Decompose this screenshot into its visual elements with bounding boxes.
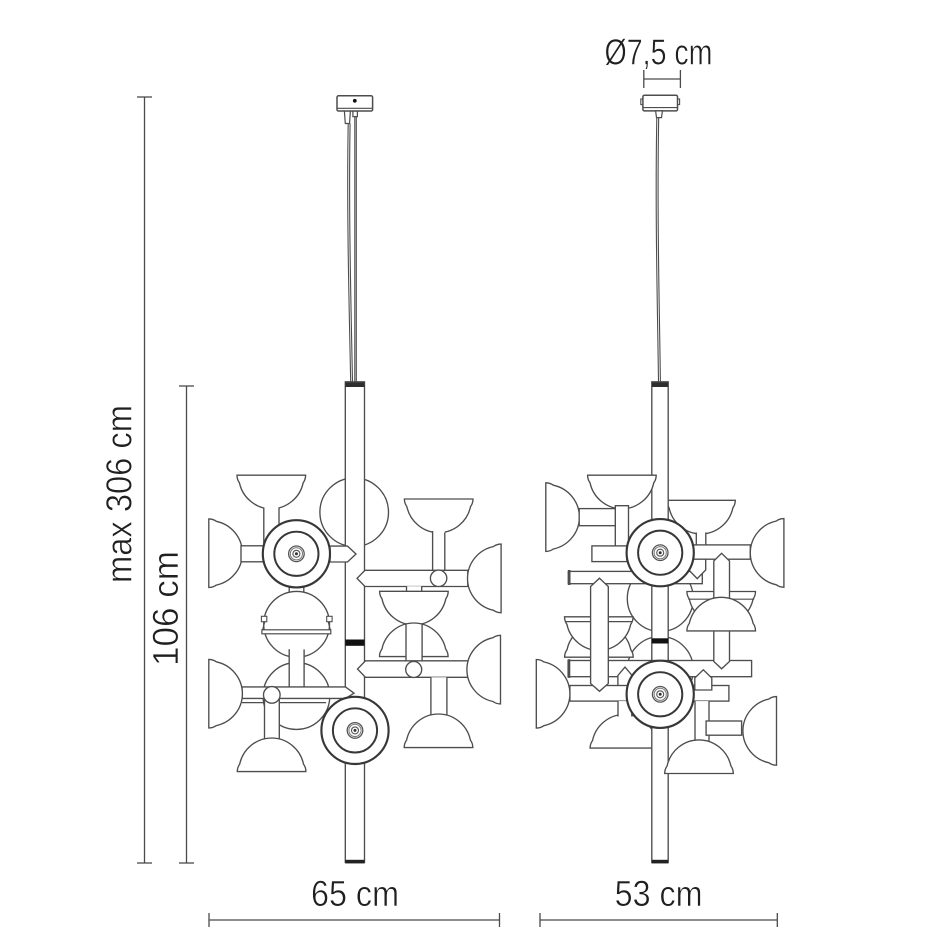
svg-text:max 306 cm: max 306 cm: [99, 405, 140, 583]
svg-text:Ø7,5 cm: Ø7,5 cm: [605, 32, 713, 73]
svg-text:106 cm: 106 cm: [145, 551, 186, 666]
svg-text:53 cm: 53 cm: [615, 873, 703, 914]
svg-text:65 cm: 65 cm: [311, 873, 399, 914]
